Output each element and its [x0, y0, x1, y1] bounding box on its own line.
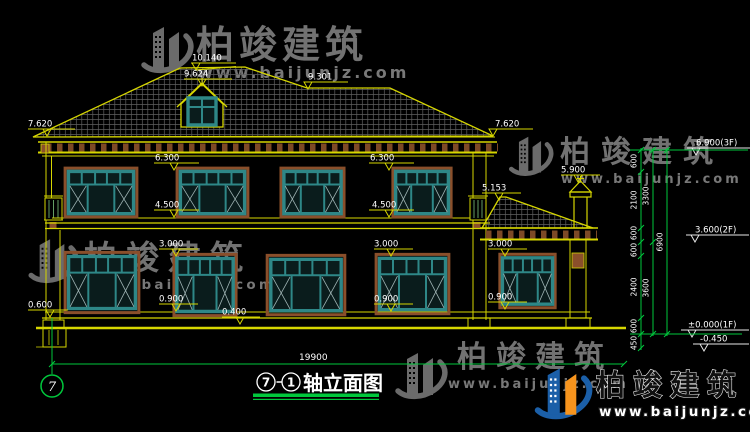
title-axis-right: 1	[287, 376, 295, 390]
window	[65, 252, 139, 312]
level-markers: 6.900(3F) 3.600(2F) ±0.000(1F) -0.450	[681, 139, 750, 352]
title-text: 轴立面图	[303, 371, 383, 395]
level-label: 6.900(3F)	[696, 139, 737, 149]
level-label: 3.600(2F)	[695, 226, 736, 236]
chain-dim: 2100	[630, 190, 639, 209]
watermark-url: www.baijunjz.com	[599, 404, 750, 420]
window	[281, 168, 344, 217]
dentil-row	[42, 144, 498, 152]
building-elevation	[33, 67, 626, 347]
total-width-label: 19900	[299, 353, 328, 363]
dim-label: 0.900	[159, 295, 183, 305]
dim-label: 0.900	[488, 293, 512, 303]
chain-dim: 600	[630, 243, 639, 258]
axis-bubble-7: 7	[41, 318, 63, 397]
cad-elevation-drawing: 柏竣建筑 www.baijunjz.com 柏竣建筑 www.baijunjz.…	[0, 0, 750, 432]
dim-label: 7.620	[495, 120, 519, 130]
level-label: -0.450	[700, 335, 727, 345]
dim-label: 10.140	[192, 54, 222, 64]
main-eave-band	[38, 142, 498, 156]
dim-label: 3.000	[159, 240, 183, 250]
main-roof	[33, 67, 493, 137]
dim-label: 5.900	[561, 166, 585, 176]
annex-dentil-row	[483, 231, 597, 239]
chain-dim: 6900	[656, 232, 665, 251]
watermark-brand: 柏竣建筑	[596, 368, 744, 402]
chain-dim: 450	[630, 336, 639, 351]
chain-dim: 3600	[642, 278, 651, 297]
floor-band	[45, 223, 490, 229]
brand-logo-icon	[398, 353, 445, 396]
level-label: ±0.000(1F)	[688, 321, 736, 331]
watermark-brand: 柏竣建筑	[196, 23, 368, 67]
dim-label: 7.620	[28, 120, 52, 130]
dim-label: 0.600	[28, 301, 52, 311]
dim-label: 3.000	[374, 240, 398, 250]
brand-logo-icon	[144, 27, 191, 70]
window	[267, 255, 345, 314]
watermark-url: www.baijunjz.com	[561, 172, 742, 187]
title-axis-left: 7	[262, 376, 270, 390]
dim-label: 0.900	[374, 295, 398, 305]
axis-number: 7	[48, 380, 57, 395]
windows-first-floor	[65, 252, 555, 315]
dim-label: 5.153	[482, 184, 506, 194]
chain-dim: 600	[630, 226, 639, 241]
watermark-brand: 柏竣建筑	[457, 340, 613, 375]
watermark-colored: 柏竣建筑 www.baijunjz.com	[538, 368, 750, 420]
downspout	[41, 144, 49, 153]
chain-dim: 600	[630, 154, 639, 169]
dim-label: 9.301	[308, 73, 332, 83]
brand-logo-icon	[538, 369, 590, 417]
window	[174, 254, 236, 315]
chain-dim: 2400	[630, 277, 639, 296]
chain-dim: 3300	[642, 186, 651, 205]
watermark-bottom: 柏竣建筑 www.baijunjz.com	[398, 340, 629, 396]
dim-label: 3.000	[488, 240, 512, 250]
dim-label: 9.624	[184, 70, 208, 80]
dim-label: 6.300	[155, 154, 179, 164]
dim-label: 6.300	[370, 154, 394, 164]
elevation-canvas: 柏竣建筑 www.baijunjz.com 柏竣建筑 www.baijunjz.…	[0, 0, 750, 432]
dim-label: 4.500	[155, 201, 179, 211]
annex-roof	[482, 197, 593, 228]
brand-logo-icon	[511, 137, 551, 174]
dim-label: 4.500	[372, 201, 396, 211]
window	[65, 168, 137, 217]
chain-dim: 600	[630, 319, 639, 334]
drawing-title: 7 1 轴立面图	[253, 371, 383, 400]
title-underline-thin	[253, 399, 379, 400]
title-underline-thick	[253, 394, 379, 398]
dim-label: 0.400	[222, 308, 246, 318]
foundation-step	[36, 328, 66, 347]
